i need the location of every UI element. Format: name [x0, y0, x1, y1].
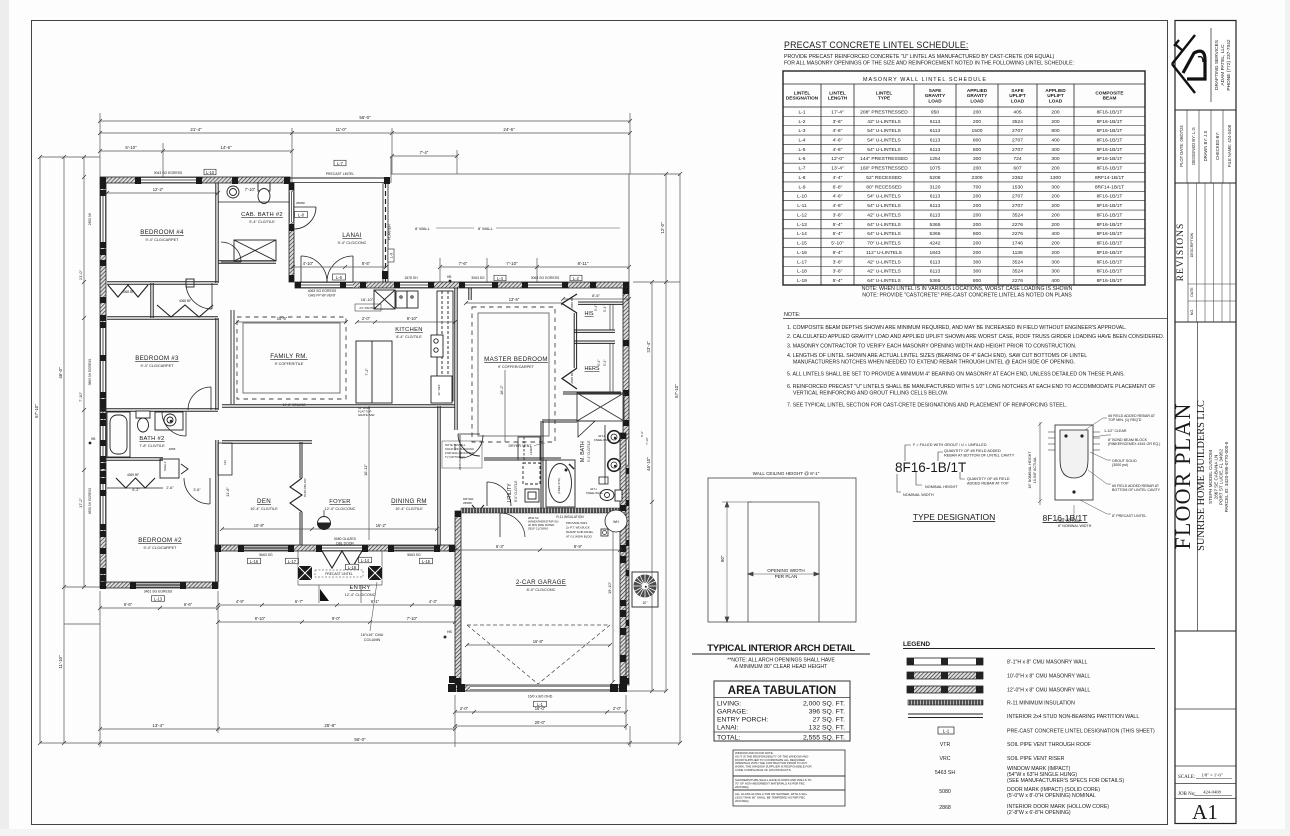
svg-text:L-3: L-3	[798, 128, 805, 134]
svg-text:42" U-LINTELS: 42" U-LINTELS	[867, 269, 901, 275]
svg-text:8'-4" CLG/TILE: 8'-4" CLG/TILE	[396, 335, 422, 339]
svg-text:2276: 2276	[1012, 222, 1023, 228]
svg-text:200: 200	[973, 250, 981, 256]
svg-text:LOAD: LOAD	[928, 98, 942, 103]
svg-text:8F16-1B/1T: 8F16-1B/1T	[1097, 194, 1123, 200]
svg-text:A1: A1	[1192, 800, 1218, 824]
svg-text:112" U-LINTELS: 112" U-LINTELS	[866, 250, 903, 256]
svg-text:56'-0": 56'-0"	[354, 737, 366, 742]
svg-text:FOYER: FOYER	[329, 499, 350, 505]
svg-text:57'-10": 57'-10"	[674, 384, 679, 398]
svg-text:WALL CEILING HEIGHT @ 8'-1": WALL CEILING HEIGHT @ 8'-1"	[753, 471, 820, 476]
svg-text:396: 396	[809, 709, 821, 716]
svg-text:L-4: L-4	[798, 138, 805, 144]
svg-text:8'-6": 8'-6"	[592, 293, 600, 298]
svg-text:1/8" = 1'-0": 1/8" = 1'-0"	[1201, 773, 1223, 778]
svg-text:TV (OPTIONAL): TV (OPTIONAL)	[445, 455, 465, 459]
svg-text:SELF CLOSING: SELF CLOSING	[528, 527, 548, 531]
svg-text:8F16-1B/1T: 8F16-1B/1T	[1097, 156, 1123, 162]
svg-text:L-8: L-8	[798, 175, 805, 181]
svg-text:GARAGE:: GARAGE:	[717, 709, 748, 716]
svg-text:8F16-1B/1T: 8F16-1B/1T	[1097, 222, 1123, 228]
svg-text:5'-4": 5'-4"	[833, 278, 843, 284]
svg-text:3863 SH EGRESS: 3863 SH EGRESS	[88, 359, 92, 386]
svg-text:8'-1"H x 8" CMU MASONRY WALL: 8'-1"H x 8" CMU MASONRY WALL	[1007, 660, 1088, 666]
svg-text:200: 200	[973, 212, 981, 218]
svg-text:160" PRESTRESSED: 160" PRESTRESSED	[860, 166, 908, 172]
svg-text:BATH #2: BATH #2	[139, 436, 164, 442]
svg-text:200: 200	[973, 241, 981, 247]
svg-text:208" PRESTRESSED: 208" PRESTRESSED	[860, 109, 908, 115]
svg-text:(SEE MANUFACTURER'S SPECS FOR: (SEE MANUFACTURER'S SPECS FOR DETAILS)	[1007, 778, 1124, 784]
svg-text:42" U-LINTELS: 42" U-LINTELS	[867, 119, 901, 125]
svg-text:(5'-0"W x 8'-0"H OPENING) NOMI: (5'-0"W x 8'-0"H OPENING) NOMINAL	[1007, 793, 1096, 799]
svg-text:8F16-1B/1T: 8F16-1B/1T	[1097, 278, 1123, 284]
svg-text:AREA TABULATION: AREA TABULATION	[728, 685, 836, 697]
svg-text:PLANTER: PLANTER	[388, 224, 392, 240]
svg-text:1136: 1136	[1012, 250, 1023, 256]
svg-text:L-10: L-10	[797, 194, 807, 200]
svg-text:4'-6": 4'-6"	[833, 138, 843, 144]
svg-text:7'-10": 7'-10"	[645, 437, 649, 445]
svg-text:9'-4" CLG/TILE: 9'-4" CLG/TILE	[249, 220, 275, 224]
svg-text:SQ. FT.: SQ. FT.	[822, 701, 845, 708]
svg-text:TYPE: TYPE	[878, 96, 890, 101]
svg-text:PARCEL ID: 3420-595-0770-000-5: PARCEL ID: 3420-595-0770-000-5	[1224, 441, 1229, 512]
svg-text:80" RECESSED: 80" RECESSED	[866, 184, 902, 190]
svg-text:17'-2": 17'-2"	[78, 497, 83, 508]
svg-text:L-8: L-8	[298, 212, 305, 217]
svg-text:7'-6": 7'-6"	[459, 261, 468, 266]
svg-text:56'-0": 56'-0"	[359, 115, 371, 120]
svg-text:6113: 6113	[930, 212, 941, 218]
svg-text:8F16-1B/1T: 8F16-1B/1T	[1097, 203, 1123, 209]
svg-text:3'-6": 3'-6"	[833, 259, 843, 265]
svg-text:7'-10": 7'-10"	[78, 391, 83, 402]
svg-text:DATE: DATE	[1190, 287, 1194, 297]
svg-text:KITCHEN: KITCHEN	[395, 327, 423, 333]
svg-text:GRATE BAR: GRATE BAR	[358, 413, 375, 417]
svg-text:9'-4": 9'-4"	[833, 250, 843, 256]
svg-text:1. COMPOSITE BEAM DEPTHS SHOW: 1. COMPOSITE BEAM DEPTHS SHOWN ARE MINIM…	[787, 325, 1127, 331]
svg-text:L-14: L-14	[797, 231, 807, 237]
svg-text:L-19: L-19	[797, 278, 807, 284]
svg-text:1500: 1500	[972, 128, 983, 134]
svg-text:11'-0": 11'-0"	[336, 127, 347, 132]
svg-text:2x P.T. WD BUCK: 2x P.T. WD BUCK	[566, 526, 590, 530]
svg-text:3524: 3524	[1012, 259, 1023, 265]
svg-text:L-5: L-5	[798, 147, 805, 153]
svg-text:24'-6": 24'-6"	[503, 127, 515, 132]
svg-text:BOTTOM OF LINTEL CAVITY: BOTTOM OF LINTEL CAVITY	[1112, 488, 1161, 492]
svg-text:**NOTE: ALL ARCH OPENINGS SHA: **NOTE: ALL ARCH OPENINGS SHALL HAVE	[727, 658, 835, 664]
svg-text:724: 724	[1013, 156, 1021, 162]
svg-text:NO.: NO.	[1190, 309, 1194, 315]
svg-text:21'-4": 21'-4"	[190, 127, 202, 132]
svg-text:1530: 1530	[1012, 184, 1023, 190]
svg-text:LOAD: LOAD	[1049, 98, 1063, 103]
svg-text:7'-4": 7'-4"	[420, 150, 429, 155]
svg-text:L-15: L-15	[422, 559, 431, 564]
svg-text:19'-10": 19'-10"	[607, 581, 612, 594]
svg-text:NOMINAL HEIGHT: NOMINAL HEIGHT	[925, 485, 958, 489]
svg-text:300: 300	[1051, 184, 1059, 190]
svg-text:16'-2": 16'-2"	[499, 384, 504, 395]
svg-text:17'-4": 17'-4"	[831, 109, 844, 115]
svg-text:COLUMN: COLUMN	[364, 638, 381, 642]
svg-text:9'-4" CLG/CARPET: 9'-4" CLG/CARPET	[144, 546, 178, 550]
svg-text:8' WALL: 8' WALL	[415, 226, 431, 231]
svg-text:200: 200	[973, 194, 981, 200]
svg-text:L-6: L-6	[336, 275, 343, 280]
svg-text:HB: HB	[447, 275, 451, 279]
svg-text:SHELF: SHELF	[163, 461, 167, 471]
svg-text:PRECAST LINTEL: PRECAST LINTEL	[326, 172, 355, 176]
svg-text:PORT ST LUCIE, FL 34952: PORT ST LUCIE, FL 34952	[1219, 448, 1224, 505]
svg-text:8F16-1B/1T: 8F16-1B/1T	[1097, 119, 1123, 125]
svg-text:2300: 2300	[972, 175, 983, 181]
svg-text:15-5/8" ACTUAL: 15-5/8" ACTUAL	[1033, 457, 1037, 483]
svg-text:ADDED REBAR AT TOP: ADDED REBAR AT TOP	[967, 482, 1009, 486]
svg-text:6'-3": 6'-3"	[496, 544, 505, 549]
svg-text:2362: 2362	[1012, 175, 1023, 181]
svg-text:LANAI: LANAI	[342, 232, 361, 239]
svg-text:16'-11": 16'-11"	[363, 463, 368, 475]
svg-text:9'-0": 9'-0"	[332, 616, 341, 621]
svg-text:800: 800	[1051, 128, 1059, 134]
svg-text:KNEE-WALL: KNEE-WALL	[586, 491, 604, 495]
svg-text:4'-6": 4'-6"	[833, 203, 843, 209]
svg-text:PRECAST CONCRETE LINTEL SCHEDU: PRECAST CONCRETE LINTEL SCHEDULE:	[784, 40, 969, 50]
svg-text:DRAWN BY: J.S: DRAWN BY: J.S	[1203, 131, 1208, 162]
svg-text:SCALE:: SCALE:	[1178, 775, 1195, 780]
svg-text:200: 200	[973, 222, 981, 228]
svg-text:6113: 6113	[930, 194, 941, 200]
svg-text:2276: 2276	[1012, 278, 1023, 284]
svg-text:DBL DOOR: DBL DOOR	[336, 542, 354, 546]
svg-text:2868: 2868	[453, 443, 457, 450]
svg-text:PLOT DATE: 09/07/24: PLOT DATE: 09/07/24	[1179, 125, 1184, 167]
svg-text:4'-6": 4'-6"	[833, 128, 843, 134]
svg-text:JOB No:: JOB No:	[1178, 792, 1196, 797]
svg-text:5. ALL LINTELS SHALL BE SET T: 5. ALL LINTELS SHALL BE SET TO PROVIDE A…	[787, 372, 1125, 378]
svg-text:6113: 6113	[930, 269, 941, 275]
svg-text:4'-10": 4'-10"	[303, 261, 314, 266]
svg-text:2868D: 2868D	[463, 501, 473, 505]
svg-text:5208: 5208	[930, 175, 941, 181]
svg-text:SOIL PIPE VENT RISER: SOIL PIPE VENT RISER	[1007, 756, 1065, 762]
svg-text:8F16-1B/1T: 8F16-1B/1T	[1097, 128, 1123, 134]
svg-text:14'-6": 14'-6"	[220, 145, 232, 150]
svg-text:BEDROOM #3: BEDROOM #3	[135, 355, 179, 362]
svg-text:SQ. FT.: SQ. FT.	[822, 717, 845, 724]
svg-text:46'-10": 46'-10"	[646, 457, 651, 471]
svg-text:LIVING:: LIVING:	[717, 701, 741, 708]
svg-text:8F16-1B/1T: 8F16-1B/1T	[1097, 241, 1123, 247]
svg-text:L-9: L-9	[798, 184, 805, 190]
svg-text:200: 200	[1051, 250, 1059, 256]
svg-text:7'-10": 7'-10"	[506, 261, 518, 266]
svg-text:5463 SH: 5463 SH	[935, 770, 955, 776]
svg-text:PRE-CAST CONCRETE LINTEL DESIG: PRE-CAST CONCRETE LINTEL DESIGNATION (TH…	[1007, 729, 1155, 735]
svg-text:5080: 5080	[939, 789, 951, 795]
svg-text:LOAD: LOAD	[970, 98, 984, 103]
svg-text:2868: 2868	[169, 447, 176, 451]
svg-text:4'-6": 4'-6"	[833, 194, 843, 200]
svg-text:300: 300	[973, 259, 981, 265]
svg-text:A MINIMUM 80" CLEAR HEAD HEIGH: A MINIMUM 80" CLEAR HEAD HEIGHT	[735, 664, 828, 670]
svg-text:10'-0"H x 8" CMU MASONRY WALL: 10'-0"H x 8" CMU MASONRY WALL	[1007, 674, 1090, 680]
svg-text:DEN: DEN	[257, 498, 271, 505]
svg-text:1843: 1843	[930, 250, 941, 256]
svg-text:SQ. FT.: SQ. FT.	[822, 725, 845, 732]
svg-text:L-6: L-6	[798, 156, 805, 162]
svg-text:9'-4" CLG/CARPET: 9'-4" CLG/CARPET	[141, 364, 175, 368]
svg-text:11'-10": 11'-10"	[58, 655, 63, 669]
svg-text:8F16-1B/1T: 8F16-1B/1T	[1097, 231, 1123, 237]
svg-text:5'-4": 5'-4"	[833, 231, 843, 237]
svg-text:L-15: L-15	[797, 241, 807, 247]
svg-text:9'-4": 9'-4"	[597, 360, 601, 366]
svg-text:2-CAR GARAGE: 2-CAR GARAGE	[516, 579, 566, 586]
svg-text:6'-6": 6'-6"	[184, 602, 193, 607]
svg-text:3'-6": 3'-6"	[833, 212, 843, 218]
svg-text:3'-6": 3'-6"	[193, 488, 201, 492]
svg-text:70" U-LINTELS: 70" U-LINTELS	[867, 241, 901, 247]
svg-text:L-16: L-16	[797, 250, 807, 256]
svg-text:L-16: L-16	[250, 559, 259, 564]
svg-text:MASTER BEDROOM: MASTER BEDROOM	[484, 356, 548, 363]
svg-text:8'-5": 8'-5"	[362, 261, 371, 266]
svg-text:12'-4" CLG/CONC: 12'-4" CLG/CONC	[345, 593, 376, 597]
svg-text:FLOOR PLAN: FLOOR PLAN	[1170, 402, 1195, 549]
svg-text:L-17: L-17	[288, 559, 297, 564]
svg-text:LENGTH: LENGTH	[828, 96, 848, 101]
svg-text:AT GL WDW BLDG: AT GL WDW BLDG	[566, 535, 593, 539]
svg-text:13'-4": 13'-4"	[831, 166, 844, 172]
svg-text:1-1/2" CLEAR: 1-1/2" CLEAR	[1104, 429, 1127, 433]
svg-text:2650 SH: 2650 SH	[88, 212, 92, 225]
svg-text:6113: 6113	[930, 119, 941, 125]
svg-text:16'-2": 16'-2"	[376, 523, 387, 528]
svg-text:VERTICAL REINFORCING AND GROUT: VERTICAL REINFORCING AND GROUT FILLING C…	[793, 391, 948, 397]
svg-text:L-7: L-7	[337, 161, 344, 166]
svg-text:6113: 6113	[930, 147, 941, 153]
svg-text:2,555: 2,555	[803, 735, 820, 742]
svg-text:PROVIDE PRECAST REINFORCED CON: PROVIDE PRECAST REINFORCED CONCRETE "U" …	[784, 54, 1054, 60]
svg-text:54" U-LINTELS: 54" U-LINTELS	[867, 194, 901, 200]
svg-text:6'-6": 6'-6"	[124, 602, 133, 607]
svg-text:DESIGNATION: DESIGNATION	[786, 96, 819, 101]
svg-text:10'-4" CLG/TILE: 10'-4" CLG/TILE	[250, 507, 278, 511]
svg-text:FILE NAME: 424-0408: FILE NAME: 424-0408	[1227, 124, 1232, 167]
svg-text:2,000: 2,000	[803, 701, 820, 708]
svg-text:2868 BF: 2868 BF	[570, 372, 574, 384]
svg-text:BEDROOM #4: BEDROOM #4	[140, 229, 184, 236]
svg-text:2023 REQ.: 2023 REQ.	[735, 799, 749, 803]
svg-text:80": 80"	[720, 555, 725, 562]
svg-text:L-2: L-2	[798, 119, 805, 125]
svg-text:8'-10": 8'-10"	[407, 316, 418, 321]
svg-text:9'-4" CLG/CARPET: 9'-4" CLG/CARPET	[146, 238, 180, 242]
svg-text:13'-6": 13'-6"	[509, 297, 520, 302]
svg-text:OPENING WIDTH: OPENING WIDTH	[767, 568, 805, 573]
svg-text:STEPH MODEL CUSTOM: STEPH MODEL CUSTOM	[1208, 450, 1213, 504]
svg-text:HIS: HIS	[585, 311, 594, 317]
svg-text:13'-4": 13'-4"	[152, 723, 164, 728]
svg-text:200: 200	[973, 203, 981, 209]
svg-text:DESCRIPTION: DESCRIPTION	[1190, 232, 1194, 257]
svg-text:BEDROOM #2: BEDROOM #2	[138, 537, 182, 544]
svg-text:52" RECESSED: 52" RECESSED	[866, 175, 902, 181]
svg-text:1300: 1300	[1050, 175, 1061, 181]
svg-text:23'-4": 23'-4"	[646, 341, 651, 353]
svg-text:2868 POCKET: 2868 POCKET	[458, 450, 462, 470]
svg-text:NOMINAL WIDTH: NOMINAL WIDTH	[903, 493, 934, 497]
svg-text:700: 700	[973, 184, 981, 190]
svg-text:2707: 2707	[1012, 128, 1023, 134]
svg-text:6113: 6113	[930, 128, 941, 134]
svg-text:8F16-1B/1T: 8F16-1B/1T	[1097, 212, 1123, 218]
svg-text:2'-0": 2'-0"	[460, 706, 469, 711]
svg-text:L-13: L-13	[154, 596, 163, 601]
svg-text:6. REINFORCED PRECAST "U" LIN: 6. REINFORCED PRECAST "U" LINTELS SHALL …	[787, 384, 1155, 390]
svg-text:WH: WH	[613, 520, 619, 524]
svg-text:200: 200	[973, 166, 981, 172]
svg-text:8F16-1B/1T: 8F16-1B/1T	[1043, 513, 1088, 523]
svg-text:4063 SG EGRESS: 4063 SG EGRESS	[308, 289, 337, 293]
svg-text:F = FILLED WITH GROUT / U = UN: F = FILLED WITH GROUT / U = UNFILLED	[913, 443, 987, 447]
svg-text:54" U-LINTELS: 54" U-LINTELS	[867, 138, 901, 144]
svg-text:5365: 5365	[930, 231, 941, 237]
svg-text:8" PRECAST LINTEL: 8" PRECAST LINTEL	[1112, 514, 1146, 518]
svg-text:L-10: L-10	[206, 170, 215, 175]
svg-text:4068 BF: 4068 BF	[179, 299, 191, 303]
svg-text:HB: HB	[447, 630, 452, 634]
svg-text:TOTAL:: TOTAL:	[717, 735, 740, 742]
svg-text:2'-0": 2'-0"	[362, 316, 371, 321]
svg-text:200: 200	[1051, 109, 1059, 115]
svg-text:12'-0"H x 8" CMU MASONRY WALL: 12'-0"H x 8" CMU MASONRY WALL	[1007, 688, 1090, 694]
svg-text:200: 200	[973, 109, 981, 115]
svg-text:5663 SG: 5663 SG	[259, 553, 273, 557]
svg-text:300: 300	[1051, 156, 1059, 162]
svg-text:2023 REQ.: 2023 REQ.	[735, 785, 749, 789]
svg-text:16"x16" CMU: 16"x16" CMU	[361, 633, 384, 637]
svg-text:2707: 2707	[1012, 147, 1023, 153]
svg-text:300: 300	[973, 156, 981, 162]
svg-text:PROVIDE 5023: PROVIDE 5023	[566, 521, 587, 525]
svg-text:4'-6": 4'-6"	[833, 147, 843, 153]
svg-text:12'-0": 12'-0"	[831, 156, 844, 162]
svg-text:300: 300	[973, 269, 981, 275]
svg-text:TYPE DESIGNATION: TYPE DESIGNATION	[913, 512, 996, 522]
svg-text:LEGEND: LEGEND	[903, 641, 930, 648]
svg-text:5'-4": 5'-4"	[603, 360, 607, 366]
svg-text:DESIGNED BY: L.G: DESIGNED BY: L.G	[1191, 127, 1196, 164]
svg-text:MANUFACTURERS NOTCHES WHEN NEE: MANUFACTURERS NOTCHES WHEN NEEDED TO EXT…	[793, 360, 1075, 366]
svg-text:PER PLAN: PER PLAN	[775, 574, 798, 579]
svg-text:8'-0" CLG/TILE: 8'-0" CLG/TILE	[514, 481, 518, 502]
svg-text:PAIR DBL DR: PAIR DBL DR	[303, 478, 307, 497]
svg-text:3524: 3524	[1012, 212, 1023, 218]
svg-text:5'-0": 5'-0"	[640, 431, 644, 437]
svg-text:3524: 3524	[1012, 119, 1023, 125]
svg-text:ENTRY: ENTRY	[349, 585, 370, 591]
svg-text:2868R: 2868R	[296, 201, 306, 205]
svg-text:ADAM PATEL, LLC: ADAM PATEL, LLC	[1220, 44, 1226, 86]
svg-text:3461 SG EGRESS: 3461 SG EGRESS	[144, 590, 173, 594]
svg-text:SQ. FT.: SQ. FT.	[822, 735, 845, 742]
svg-text:(FREE STD): (FREE STD)	[557, 478, 561, 494]
svg-text:200: 200	[1051, 203, 1059, 209]
svg-text:8RF14-1B/1T: 8RF14-1B/1T	[1095, 184, 1124, 190]
svg-text:8F16-1B/1T: 8F16-1B/1T	[1097, 147, 1123, 153]
svg-text:NOTE: WHEN LINTEL IS IN VARIO: NOTE: WHEN LINTEL IS IN VARIOUS LOCATION…	[862, 286, 1073, 292]
svg-text:16'-10": 16'-10"	[361, 297, 374, 302]
svg-text:10'-4" CLG/TILE: 10'-4" CLG/TILE	[395, 507, 423, 511]
svg-text:8" NOMINAL WIDTH: 8" NOMINAL WIDTH	[1058, 524, 1092, 528]
svg-text:27: 27	[812, 717, 820, 724]
svg-text:SQ. FT.: SQ. FT.	[822, 709, 845, 716]
svg-text:6'-2": 6'-2"	[132, 488, 140, 492]
svg-text:3043 SG EGRESS: 3043 SG EGRESS	[154, 171, 183, 175]
svg-text:8'-0" CLG/CONC: 8'-0" CLG/CONC	[527, 588, 556, 592]
svg-text:MASONRY WALL LINTEL SCHEDUL: MASONRY WALL LINTEL SCHEDULE	[863, 77, 987, 83]
svg-text:200: 200	[1051, 119, 1059, 125]
svg-text:2'-6": 2'-6"	[166, 486, 174, 490]
svg-text:7'-10": 7'-10"	[407, 616, 418, 621]
svg-text:L-14: L-14	[361, 558, 370, 563]
svg-text:FOR ALL MASONRY OPENINGS OF TH: FOR ALL MASONRY OPENINGS OF THE SIZE AND…	[784, 61, 1074, 67]
svg-text:800: 800	[973, 231, 981, 237]
svg-text:2707: 2707	[1012, 138, 1023, 144]
svg-text:16" NOMINAL HEIGHT: 16" NOMINAL HEIGHT	[1028, 451, 1032, 489]
svg-text:300: 300	[1051, 269, 1059, 275]
svg-text:3063 SG EGRESS: 3063 SG EGRESS	[531, 276, 560, 280]
svg-text:4069 BF: 4069 BF	[127, 473, 139, 477]
svg-text:5365: 5365	[930, 278, 941, 284]
svg-text:400: 400	[1051, 138, 1059, 144]
svg-text:2276: 2276	[1012, 231, 1023, 237]
svg-text:1746: 1746	[1012, 241, 1023, 247]
svg-text:7'-8" CLG/TILE: 7'-8" CLG/TILE	[139, 444, 165, 448]
svg-text:4. LENGTHS OF LINTEL SHOWN AR: 4. LENGTHS OF LINTEL SHOWN ARE ACTUAL LI…	[787, 353, 1087, 359]
svg-text:R-11 MINIMUM INSULATION: R-11 MINIMUM INSULATION	[1007, 701, 1075, 707]
svg-text:3'-6": 3'-6"	[833, 119, 843, 125]
svg-text:12'-0": 12'-0"	[660, 222, 665, 234]
svg-text:1878 SH: 1878 SH	[404, 276, 418, 280]
svg-text:2650 SH EGRESS: 2650 SH EGRESS	[88, 488, 92, 515]
svg-text:VRC: VRC	[940, 756, 951, 762]
svg-text:8F16-1B/1T: 8F16-1B/1T	[1097, 138, 1123, 144]
svg-text:ENTRY PORCH:: ENTRY PORCH:	[717, 717, 768, 724]
svg-text:800: 800	[973, 138, 981, 144]
svg-text:2707: 2707	[1012, 203, 1023, 209]
svg-text:3. MASONRY CONTRACTOR TO VERI: 3. MASONRY CONTRACTOR TO VERIFY EACH MAS…	[787, 344, 1076, 350]
svg-text:8F16-1B/1T: 8F16-1B/1T	[895, 460, 966, 475]
svg-text:KNEE-WALL: KNEE-WALL	[594, 438, 612, 442]
svg-text:CHECKED BY:: CHECKED BY:	[1215, 132, 1220, 160]
svg-text:24" PANTRY: 24" PANTRY	[359, 306, 376, 310]
svg-text:16/0 x 8/0 OHD: 16/0 x 8/0 OHD	[528, 695, 553, 699]
svg-text:25'-8": 25'-8"	[324, 723, 336, 728]
svg-text:QUANTITY OF #5 FIELD: QUANTITY OF #5 FIELD	[967, 477, 1010, 481]
svg-text:144" PRESTRESSED: 144" PRESTRESSED	[860, 156, 908, 162]
svg-text:L-2: L-2	[573, 276, 580, 281]
svg-text:6'-1": 6'-1"	[371, 599, 380, 604]
svg-text:REVISIONS: REVISIONS	[1176, 223, 1186, 282]
